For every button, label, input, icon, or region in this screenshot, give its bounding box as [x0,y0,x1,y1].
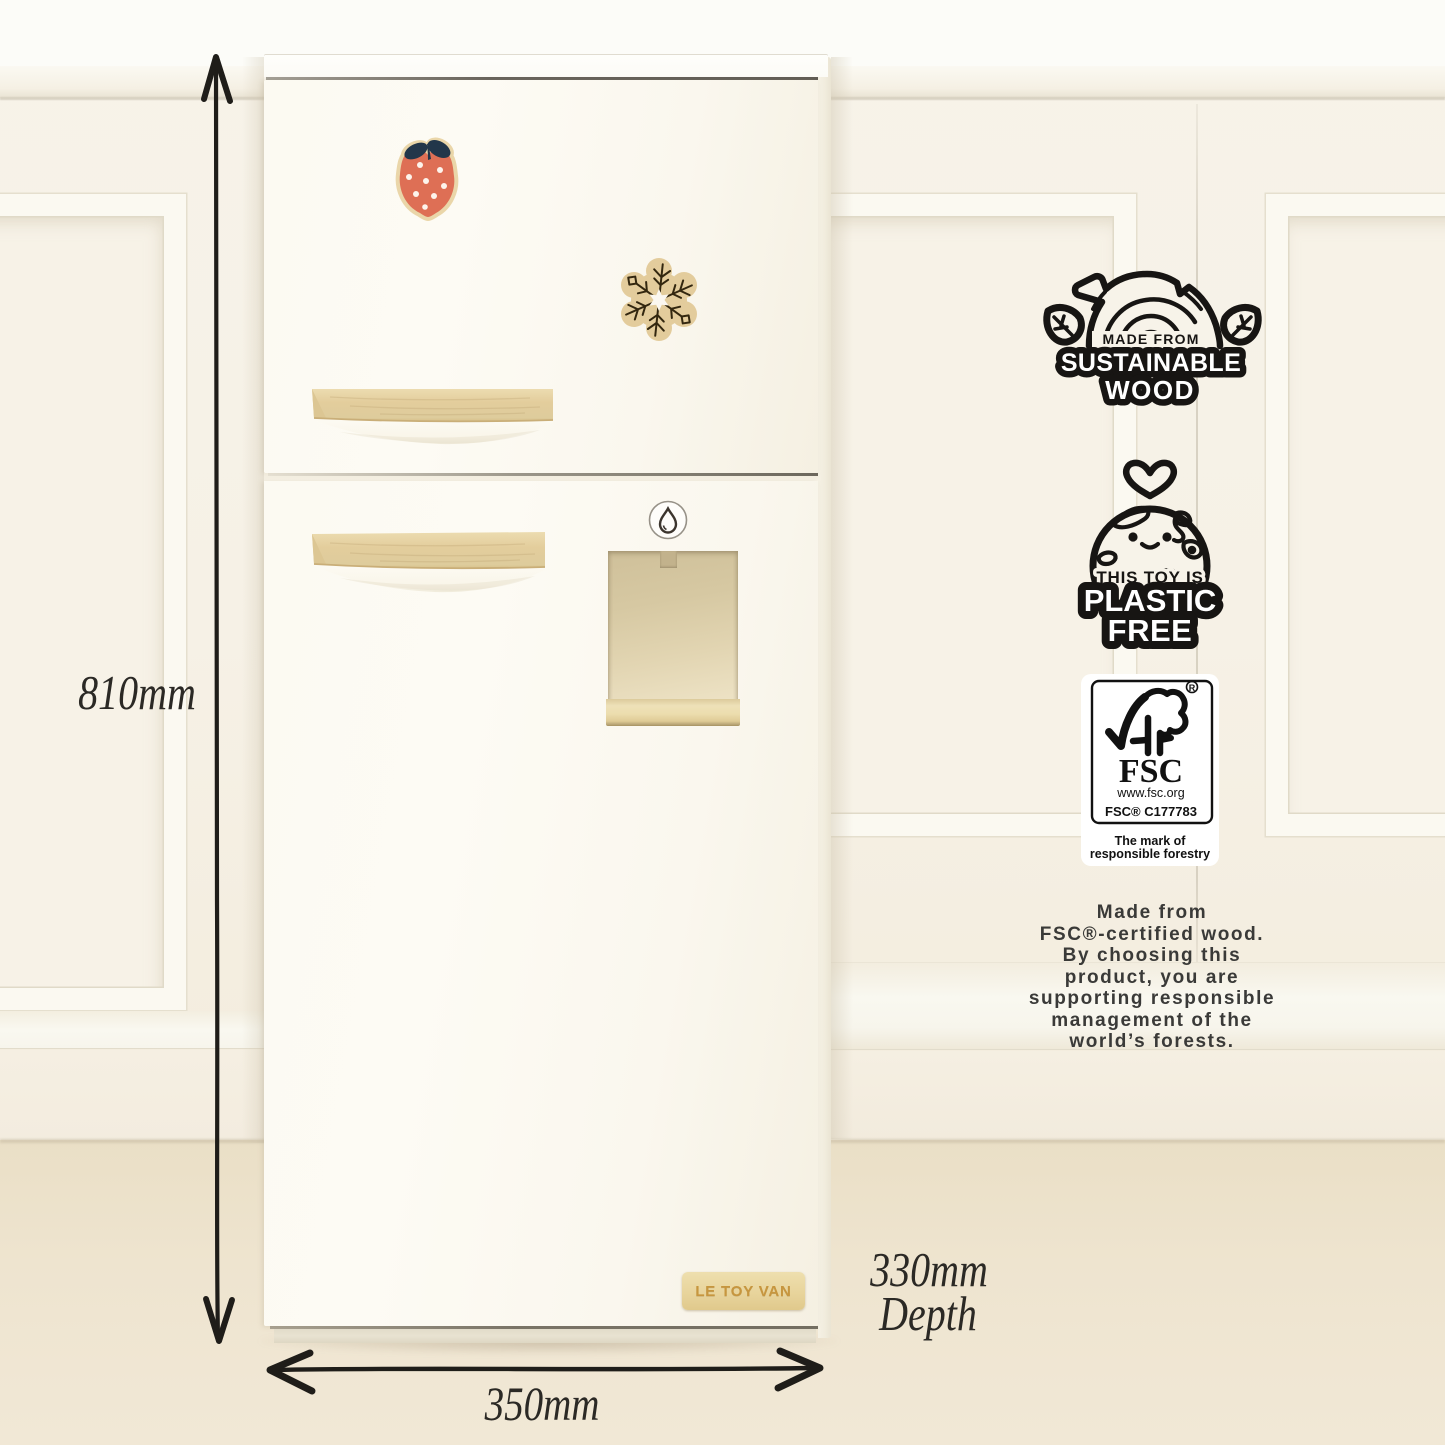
svg-text:MADE FROM: MADE FROM [1102,331,1199,347]
svg-text:The mark of: The mark of [1115,834,1187,848]
svg-text:responsible forestry: responsible forestry [1090,847,1210,861]
svg-text:FREE: FREE [1108,613,1193,648]
svg-text:350mm: 350mm [484,1378,600,1430]
svg-text:810mm: 810mm [78,665,196,720]
svg-text:SUSTAINABLE: SUSTAINABLE [1061,349,1241,377]
svg-text:Depth: Depth [878,1286,977,1341]
svg-text:WOOD: WOOD [1105,375,1195,405]
svg-text:FSC® C177783: FSC® C177783 [1105,804,1197,819]
svg-text:www.fsc.org: www.fsc.org [1116,786,1184,800]
svg-text:FSC: FSC [1119,753,1183,790]
svg-text:R: R [1189,683,1196,693]
